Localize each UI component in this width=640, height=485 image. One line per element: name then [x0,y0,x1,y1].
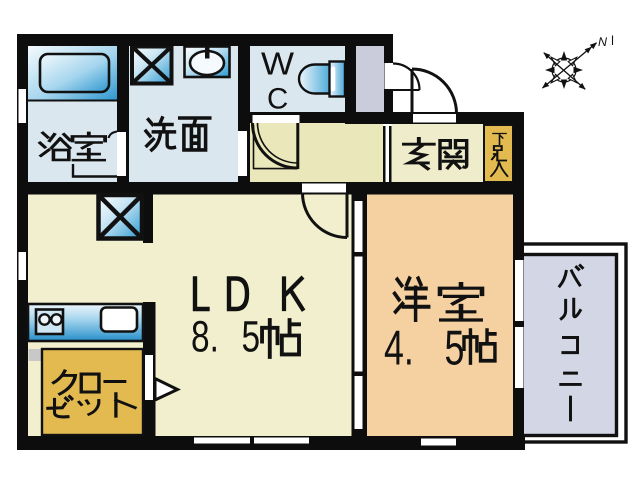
svg-text:8.: 8. [191,313,219,362]
svg-text:N: N [598,35,608,49]
svg-text:4.: 4. [384,322,414,376]
svg-text:5: 5 [242,313,261,362]
svg-text:W: W [261,46,295,82]
svg-text:C: C [267,83,288,116]
svg-text:5: 5 [445,322,465,376]
